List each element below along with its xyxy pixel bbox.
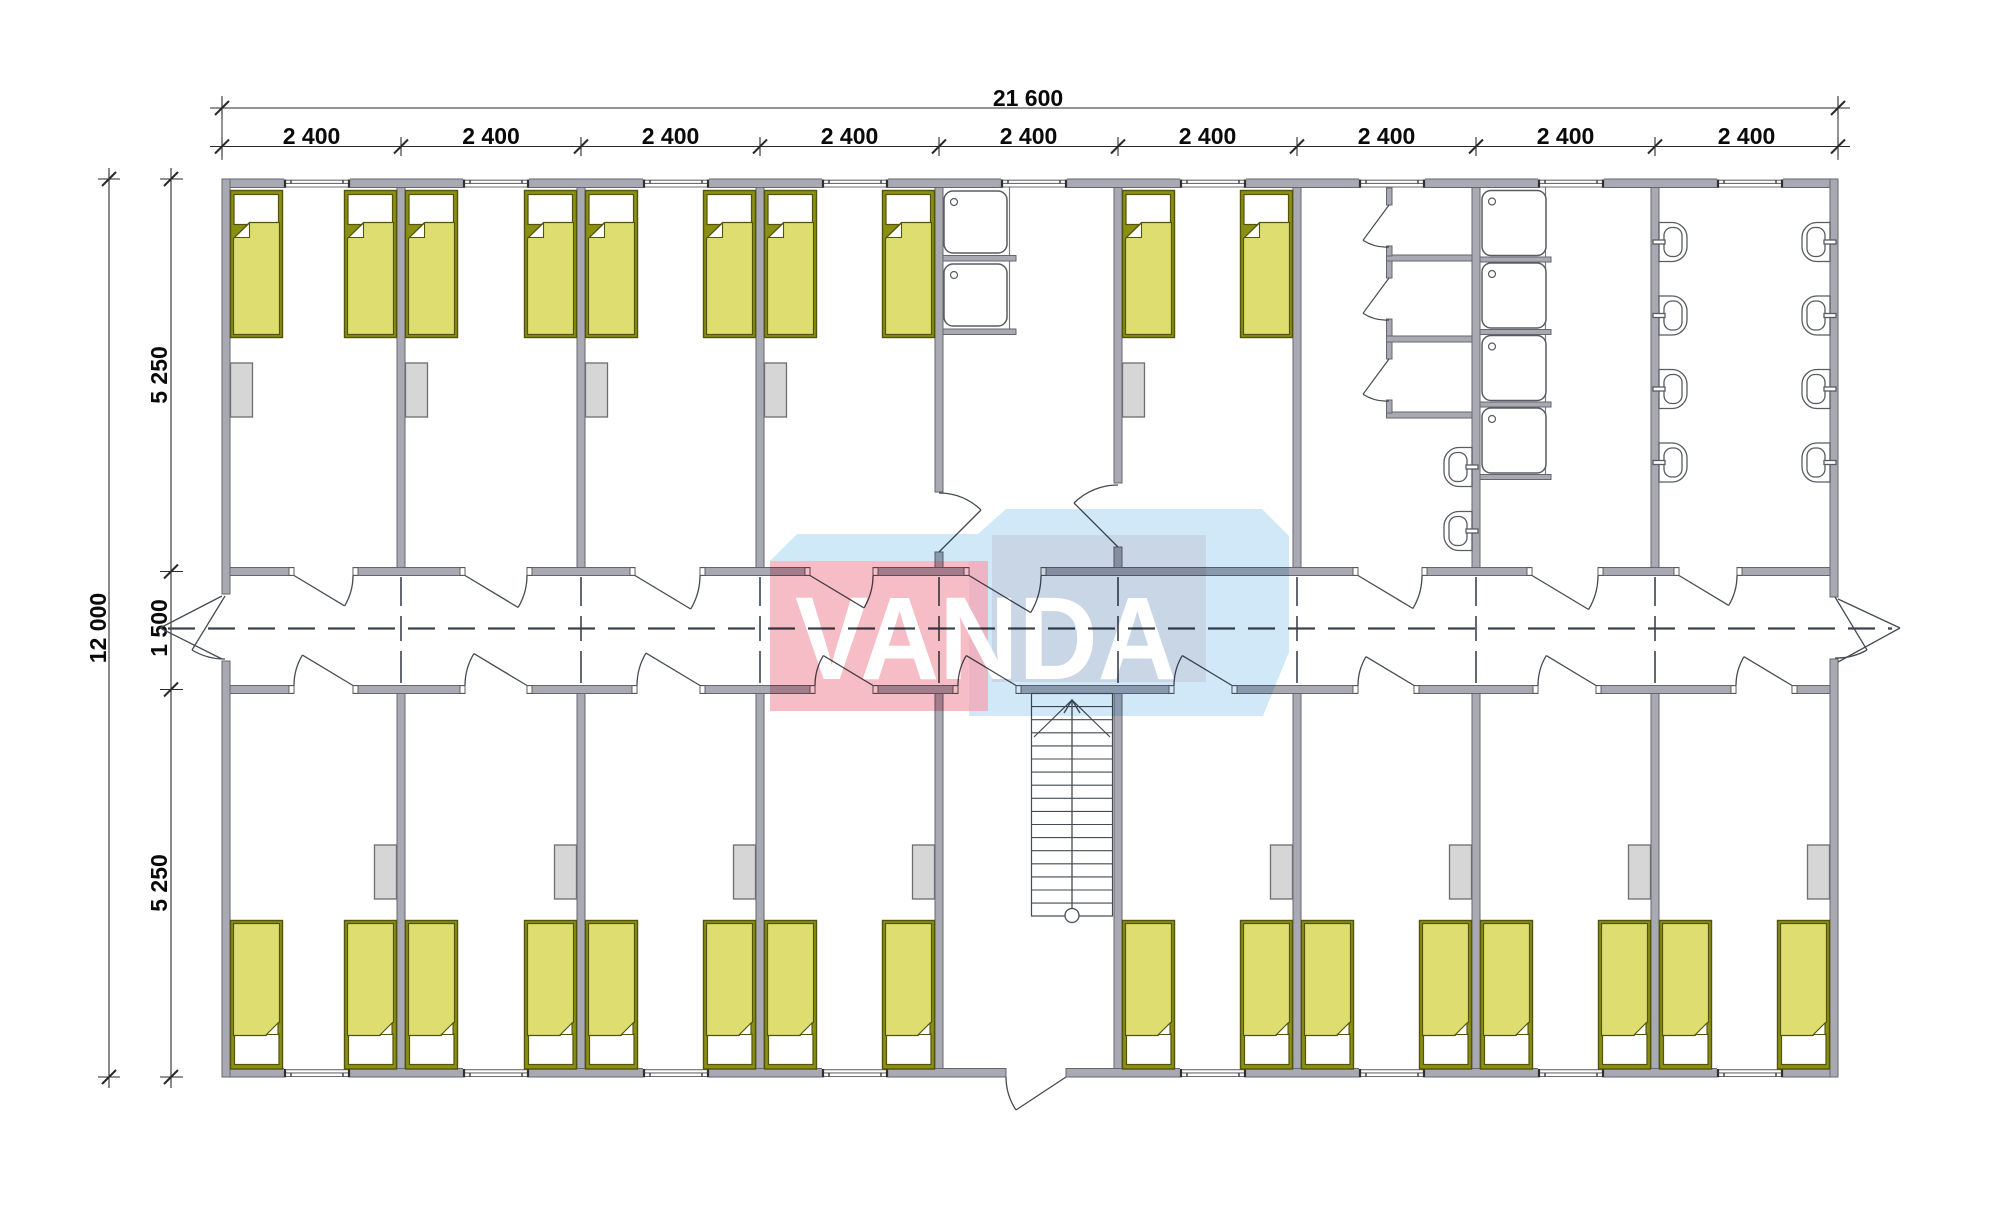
svg-text:12 000: 12 000 xyxy=(85,593,111,663)
svg-text:5 250: 5 250 xyxy=(146,854,172,912)
svg-text:2 400: 2 400 xyxy=(1179,123,1237,149)
svg-text:5 250: 5 250 xyxy=(146,346,172,404)
svg-text:2 400: 2 400 xyxy=(1718,123,1776,149)
svg-text:2 400: 2 400 xyxy=(462,123,520,149)
svg-text:21 600: 21 600 xyxy=(993,85,1063,111)
svg-text:2 400: 2 400 xyxy=(1358,123,1416,149)
svg-text:2 400: 2 400 xyxy=(821,123,879,149)
svg-text:VANDA: VANDA xyxy=(795,573,1177,705)
svg-text:2 400: 2 400 xyxy=(283,123,341,149)
svg-text:2 400: 2 400 xyxy=(1000,123,1058,149)
svg-text:2 400: 2 400 xyxy=(1537,123,1595,149)
svg-text:2 400: 2 400 xyxy=(642,123,700,149)
